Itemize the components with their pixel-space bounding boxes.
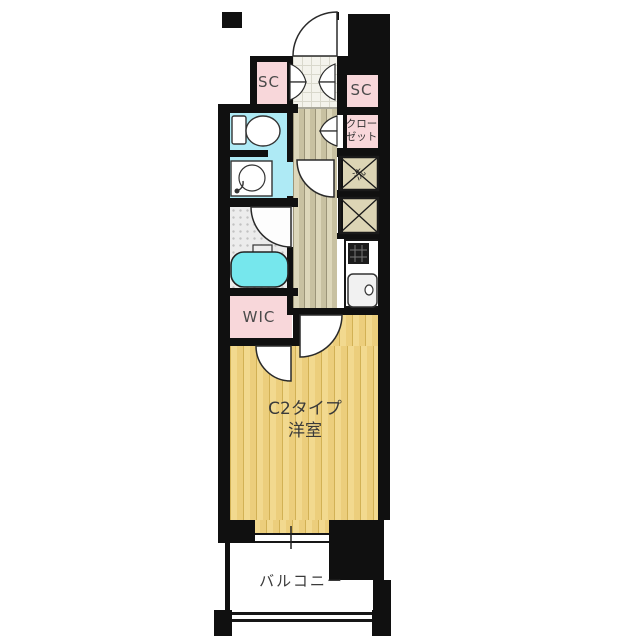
wall-sc-right-top [343,56,378,75]
wall-room-bottom-left-step [218,520,255,543]
balcony-label: バルコニー [230,570,373,591]
wall-washer-fridge-band [337,190,378,198]
wall-sc-closet-band [343,107,378,115]
wall-toilet-partition [218,150,268,157]
wall-fridge-kitchen-band [337,233,384,239]
entrance-step-line [293,107,337,109]
main-room-floor-upper [300,315,378,346]
shoe-closet-left-label: SC [250,73,288,91]
closet-label: クロー ゼット [343,118,380,144]
balcony-railing [230,612,372,622]
kitchen-counter [344,239,382,308]
wall-wic-bottom [222,338,295,346]
wall-toilet-top [218,104,298,113]
floorplan-canvas: SC SC クロー ゼット 洗 WIC C2タイプ 洋室 バルコニー [0,0,640,640]
wall-closet-washer-band [337,148,378,157]
entrance-floor [293,56,337,108]
closet-label-line1: クロー [346,118,378,130]
wall-pillar-top-left [222,12,242,28]
wall-washroom-bottom [218,198,298,207]
wall-balcony-right [373,580,391,612]
wall-tub-bottom [218,288,298,296]
balcony-window [253,533,329,543]
main-room-label-line2: 洋室 [230,420,380,442]
wall-pillar-bottom-right [372,610,391,636]
shoe-closet-right-label: SC [344,81,379,99]
main-room-label: C2タイプ 洋室 [230,398,380,442]
hallway-floor [293,108,337,308]
fridge-space-box [340,198,378,233]
wall-block-top-right [348,14,390,56]
wall-entry-lintel [335,12,339,20]
wall-kitchen-bottom [293,308,384,315]
bathroom-floor [230,207,293,290]
walk-in-closet-label: WIC [226,308,292,326]
closet-label-line2: ゼット [346,131,378,143]
main-room-label-line1: C2タイプ [230,398,380,420]
wall-pillar-bottom-left [214,610,232,636]
entrance-door-arc-icon [293,12,337,56]
